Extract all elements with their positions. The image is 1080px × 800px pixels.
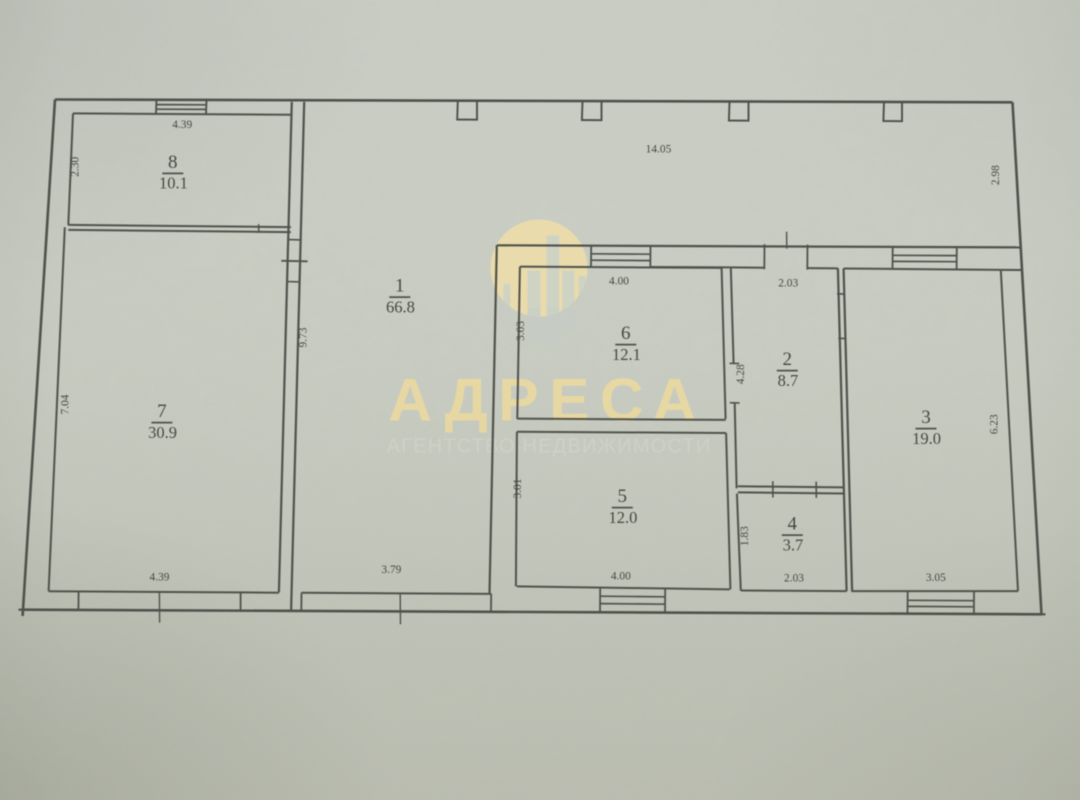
svg-text:4.00: 4.00: [611, 571, 631, 583]
svg-text:1: 1: [395, 276, 405, 297]
svg-text:АДРЕСА: АДРЕСА: [388, 366, 707, 434]
svg-text:2.30: 2.30: [69, 157, 81, 177]
svg-text:2.03: 2.03: [778, 277, 798, 289]
svg-text:6: 6: [621, 323, 631, 344]
svg-text:4.39: 4.39: [150, 571, 170, 583]
svg-text:12.1: 12.1: [612, 345, 641, 364]
svg-text:АГЕНТСТВО НЕДВИЖИМОСТИ: АГЕНТСТВО НЕДВИЖИМОСТИ: [387, 436, 712, 458]
svg-text:4.00: 4.00: [609, 275, 629, 287]
svg-text:4.28: 4.28: [735, 364, 747, 384]
svg-text:9.73: 9.73: [298, 327, 310, 347]
svg-text:3.79: 3.79: [381, 564, 401, 576]
svg-text:1.83: 1.83: [739, 526, 751, 546]
svg-text:14.05: 14.05: [646, 143, 672, 155]
svg-text:2: 2: [783, 349, 793, 370]
svg-text:66.8: 66.8: [386, 297, 415, 316]
svg-text:3.05: 3.05: [926, 572, 946, 584]
svg-text:2.03: 2.03: [784, 572, 804, 584]
svg-text:4.39: 4.39: [172, 119, 192, 131]
svg-text:5: 5: [618, 486, 628, 507]
svg-text:8: 8: [168, 152, 178, 173]
svg-text:19.0: 19.0: [912, 429, 941, 448]
svg-text:7: 7: [157, 401, 167, 422]
svg-text:10.1: 10.1: [159, 174, 188, 193]
svg-text:3.7: 3.7: [783, 535, 804, 554]
svg-text:3.03: 3.03: [515, 321, 527, 341]
svg-text:6.23: 6.23: [989, 414, 1001, 434]
svg-text:4: 4: [788, 514, 798, 535]
svg-text:12.0: 12.0: [608, 508, 637, 527]
svg-text:2.98: 2.98: [990, 165, 1002, 185]
svg-text:8.7: 8.7: [778, 371, 799, 390]
svg-text:7.04: 7.04: [60, 394, 72, 414]
svg-text:30.9: 30.9: [148, 423, 177, 442]
svg-text:3.01: 3.01: [512, 478, 524, 498]
svg-text:3: 3: [921, 407, 931, 428]
